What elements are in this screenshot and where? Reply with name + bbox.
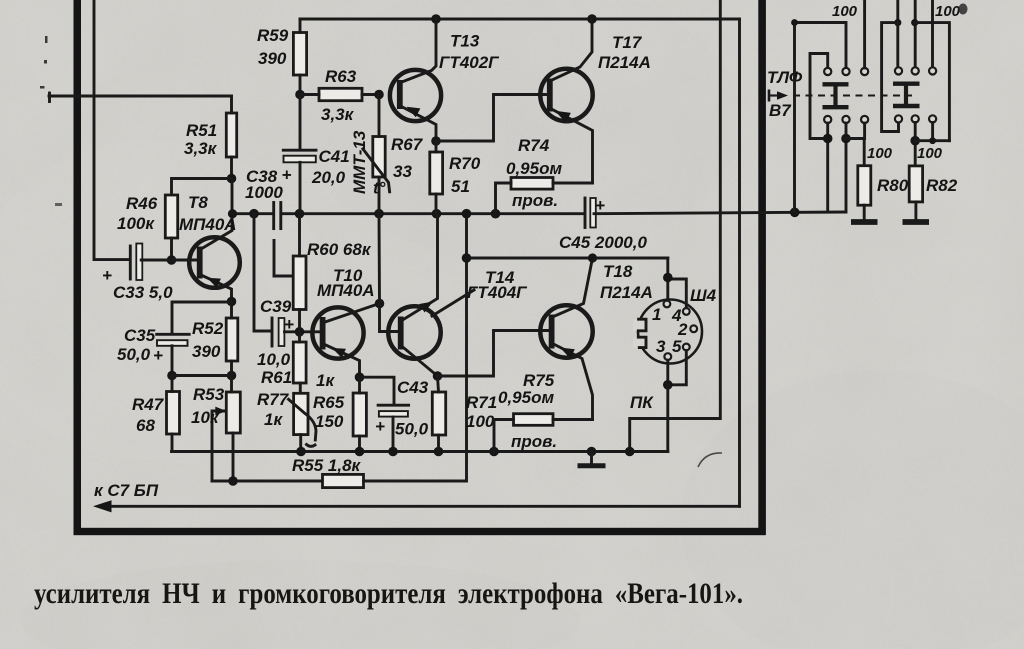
- svg-text:Т18: Т18: [603, 262, 633, 281]
- svg-text:1к: 1к: [316, 371, 335, 390]
- svg-text:10,0: 10,0: [257, 350, 291, 369]
- svg-text:ММТ-13: ММТ-13: [350, 130, 369, 194]
- svg-text:R59: R59: [257, 26, 289, 45]
- svg-text:В7: В7: [769, 101, 792, 120]
- svg-text:С39: С39: [260, 297, 292, 316]
- svg-text:R46: R46: [126, 194, 158, 213]
- svg-text:+: +: [284, 315, 294, 334]
- svg-text:150: 150: [315, 412, 344, 431]
- svg-text:+: +: [153, 346, 163, 365]
- svg-text:ТЛФ: ТЛФ: [767, 68, 803, 87]
- svg-text:R60 68к: R60 68к: [307, 240, 372, 259]
- svg-text:пров.: пров.: [512, 191, 558, 210]
- svg-text:С35: С35: [124, 326, 156, 345]
- svg-text:100: 100: [832, 3, 858, 20]
- svg-text:3,3к: 3,3к: [184, 139, 218, 158]
- svg-text:10к: 10к: [191, 408, 220, 427]
- svg-text:П214А: П214А: [598, 53, 651, 72]
- svg-text:Т13: Т13: [450, 32, 480, 51]
- svg-text:68: 68: [136, 416, 155, 435]
- svg-text:51: 51: [451, 177, 470, 196]
- svg-text:R53: R53: [193, 385, 225, 404]
- svg-text:0,95ом: 0,95ом: [498, 388, 554, 407]
- svg-text:R61: R61: [261, 368, 292, 387]
- svg-text:Т17: Т17: [612, 33, 643, 52]
- svg-text:1к: 1к: [264, 410, 283, 429]
- svg-text:100: 100: [867, 145, 893, 162]
- svg-text:+: +: [595, 196, 605, 215]
- svg-text:Т8: Т8: [188, 193, 208, 212]
- svg-text:ГТ404Г: ГТ404Г: [467, 283, 528, 302]
- svg-text:1000: 1000: [245, 183, 283, 202]
- svg-text:+: +: [102, 266, 112, 285]
- svg-text:+: +: [282, 166, 292, 185]
- svg-text:50,0: 50,0: [395, 420, 429, 439]
- svg-text:пров.: пров.: [511, 432, 557, 451]
- svg-text:R74: R74: [518, 136, 550, 155]
- svg-text:С33 5,0: С33 5,0: [113, 283, 173, 302]
- svg-text:ПК: ПК: [630, 393, 654, 412]
- svg-text:R70: R70: [449, 154, 481, 173]
- svg-text:R71: R71: [466, 393, 497, 412]
- svg-text:R65: R65: [313, 393, 345, 412]
- svg-text:5: 5: [672, 337, 682, 356]
- svg-text:t°: t°: [373, 179, 386, 198]
- svg-text:R55 1,8к: R55 1,8к: [292, 456, 362, 475]
- svg-text:100: 100: [935, 3, 961, 20]
- svg-text:3: 3: [656, 337, 666, 356]
- svg-text:МП40А: МП40А: [179, 215, 237, 234]
- svg-text:390: 390: [258, 49, 287, 68]
- svg-text:100: 100: [466, 412, 495, 431]
- svg-text:R82: R82: [926, 176, 958, 195]
- svg-text:+: +: [375, 417, 385, 436]
- svg-text:33: 33: [393, 162, 412, 181]
- svg-text:П214А: П214А: [600, 283, 653, 302]
- svg-text:R47: R47: [132, 395, 165, 414]
- svg-text:R51: R51: [186, 121, 217, 140]
- svg-text:R77: R77: [257, 390, 290, 409]
- svg-text:к С7 БП: к С7 БП: [94, 481, 159, 500]
- svg-text:100к: 100к: [117, 214, 155, 233]
- svg-text:R52: R52: [192, 319, 224, 338]
- svg-text:1: 1: [652, 305, 661, 324]
- svg-text:0,95ом: 0,95ом: [506, 159, 562, 178]
- svg-text:3,3к: 3,3к: [321, 105, 355, 124]
- svg-text:20,0: 20,0: [311, 168, 346, 187]
- svg-text:ГТ402Г: ГТ402Г: [439, 53, 500, 72]
- svg-text:R80: R80: [877, 176, 909, 195]
- svg-text:Ш4: Ш4: [690, 286, 717, 305]
- svg-text:С45 2000,0: С45 2000,0: [559, 233, 647, 252]
- svg-text:100: 100: [917, 145, 943, 162]
- svg-text:МП40А: МП40А: [317, 281, 375, 300]
- svg-text:390: 390: [192, 342, 221, 361]
- svg-text:50,0: 50,0: [117, 345, 151, 364]
- svg-text:С41: С41: [319, 147, 350, 166]
- svg-text:R63: R63: [325, 67, 357, 86]
- svg-text:С43: С43: [397, 378, 429, 397]
- svg-text:R67: R67: [391, 135, 424, 154]
- svg-text:усилителя НЧ и громкоговорител: усилителя НЧ и громкоговорителя электроф…: [34, 577, 743, 610]
